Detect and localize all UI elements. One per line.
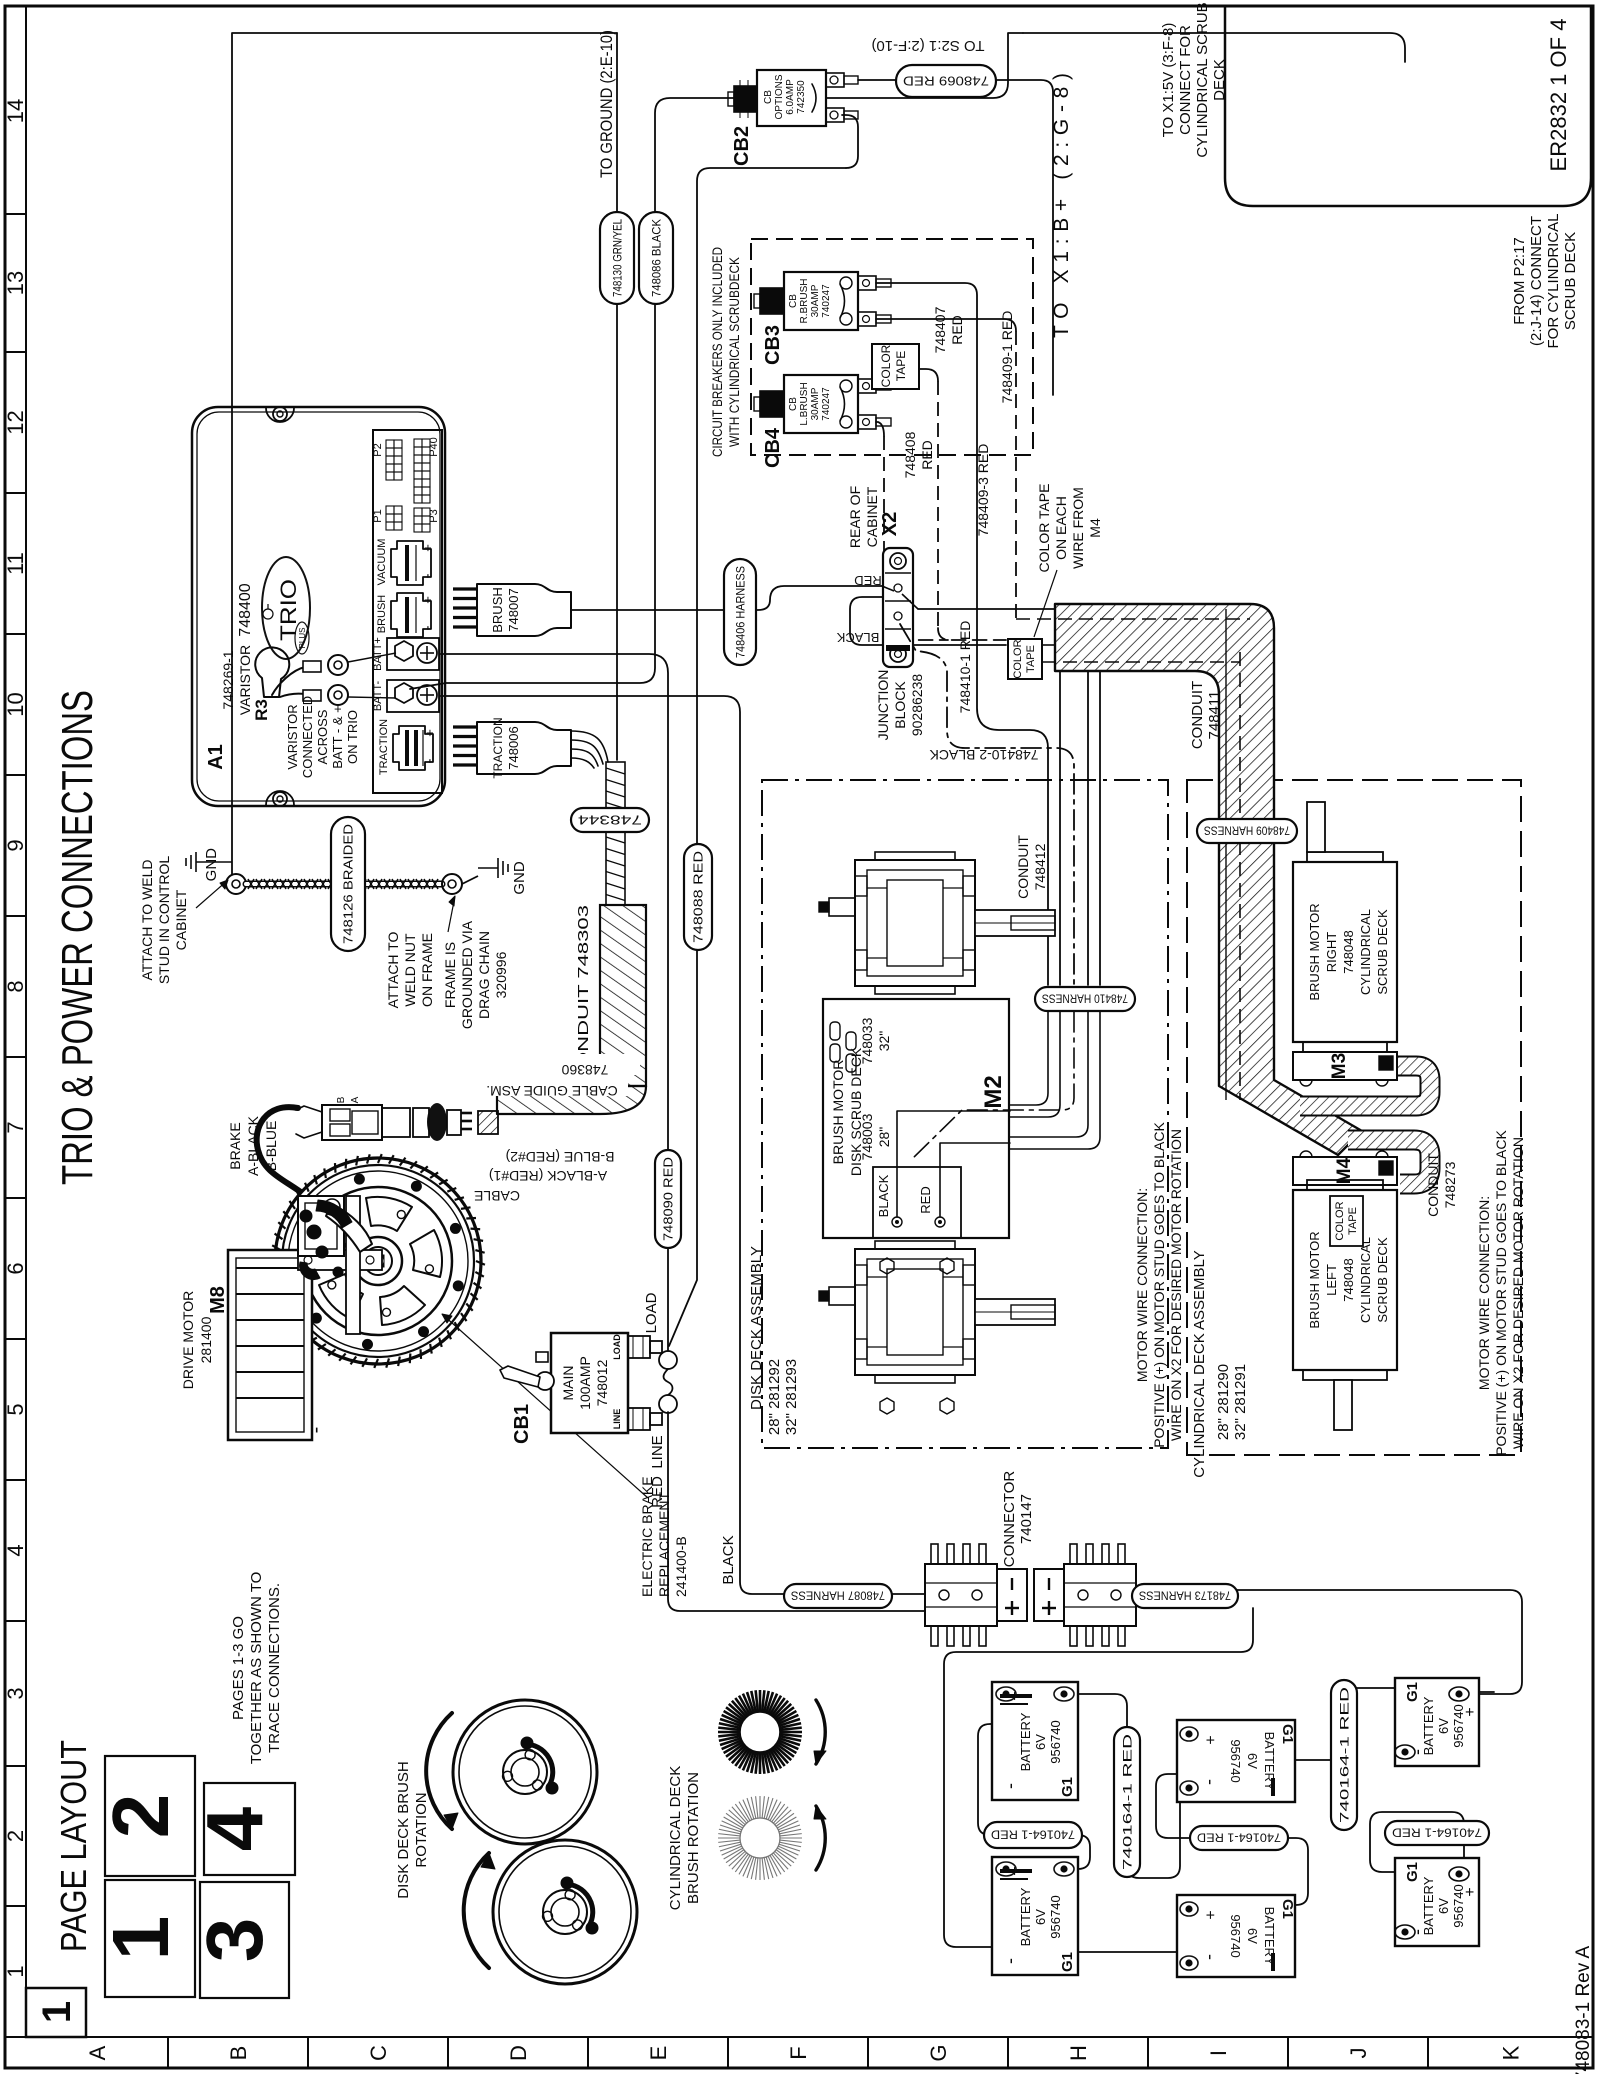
svg-text:X2: X2 — [879, 512, 901, 536]
svg-text:7: 7 — [3, 1121, 28, 1133]
svg-text:748269-1: 748269-1 — [220, 650, 236, 709]
svg-text:MOTOR WIRE CONNECTION:: MOTOR WIRE CONNECTION: — [1476, 1196, 1492, 1390]
svg-text:13: 13 — [3, 271, 28, 295]
svg-text:32" 281293: 32" 281293 — [783, 1359, 800, 1435]
svg-text:G1: G1 — [1279, 1724, 1296, 1744]
svg-text:748411: 748411 — [1206, 691, 1223, 740]
svg-text:ELECTRIC BRAKE: ELECTRIC BRAKE — [639, 1476, 655, 1597]
svg-text:-: - — [419, 626, 436, 631]
svg-text:COLOR: COLOR — [1012, 639, 1024, 678]
svg-text:CABLE: CABLE — [474, 1188, 520, 1204]
svg-text:A-BLACK: A-BLACK — [245, 1115, 261, 1176]
svg-text:BATT+: BATT+ — [372, 637, 384, 671]
svg-text:CIRCUIT BREAKERS ONLY INCLUDED: CIRCUIT BREAKERS ONLY INCLUDED — [709, 247, 725, 457]
svg-text:ON EACH: ON EACH — [1053, 496, 1069, 560]
svg-text:G1: G1 — [1404, 1862, 1421, 1882]
svg-text:GND: GND — [511, 861, 528, 895]
svg-text:CYLINDRICAL SCRUB: CYLINDRICAL SCRUB — [1194, 2, 1211, 157]
svg-text:241400-B: 241400-B — [673, 1536, 689, 1597]
svg-text:6V: 6V — [1245, 1753, 1260, 1769]
svg-text:4: 4 — [3, 1544, 28, 1556]
svg-text:748088 RED: 748088 RED — [691, 851, 706, 943]
svg-text:BLOCK: BLOCK — [892, 681, 908, 729]
svg-text:748090 RED: 748090 RED — [661, 1157, 676, 1241]
svg-text:BATTERY: BATTERY — [1421, 1696, 1436, 1755]
svg-text:956740: 956740 — [1048, 1895, 1063, 1938]
svg-text:3: 3 — [3, 1687, 28, 1699]
svg-text:748360: 748360 — [561, 1062, 608, 1078]
svg-text:748087 HARNESS: 748087 HARNESS — [791, 1589, 885, 1603]
svg-text:748006: 748006 — [506, 726, 521, 769]
svg-text:6: 6 — [3, 1262, 28, 1274]
svg-text:8: 8 — [3, 980, 28, 992]
svg-text:ATTACH TO WELD: ATTACH TO WELD — [139, 859, 155, 980]
svg-text:LEFT: LEFT — [1324, 1264, 1339, 1296]
svg-text:-: - — [1000, 1783, 1020, 1789]
svg-text:748410 HARNESS: 748410 HARNESS — [1042, 992, 1128, 1006]
svg-text:740164-1 RED: 740164-1 RED — [1392, 1826, 1482, 1840]
svg-text:P1: P1 — [372, 509, 384, 522]
svg-text:748048: 748048 — [1341, 1258, 1356, 1301]
svg-text:BATT - & +: BATT - & + — [330, 705, 345, 768]
svg-text:DECK: DECK — [1211, 59, 1228, 101]
svg-text:30AMP: 30AMP — [810, 387, 821, 420]
svg-text:E: E — [646, 2046, 671, 2061]
svg-text:ACROSS: ACROSS — [315, 709, 330, 764]
svg-text:H: H — [1066, 2045, 1091, 2061]
svg-text:740164-1 RED: 740164-1 RED — [1120, 1733, 1134, 1870]
svg-text:CB: CB — [763, 90, 774, 104]
svg-text:TO GROUND (2:E-10): TO GROUND (2:E-10) — [597, 30, 616, 178]
svg-text:GND: GND — [203, 848, 220, 882]
svg-text:742350: 742350 — [796, 80, 807, 114]
svg-text:748012: 748012 — [594, 1359, 610, 1406]
svg-text:740247: 740247 — [821, 284, 832, 318]
svg-text:JUNCTION: JUNCTION — [875, 670, 891, 741]
svg-text:POSITIVE (+) ON MOTOR STUD GOE: POSITIVE (+) ON MOTOR STUD GOES TO BLACK — [1151, 1122, 1167, 1448]
svg-text:PLUS: PLUS — [298, 628, 307, 649]
svg-text:BATTERY: BATTERY — [1018, 1887, 1033, 1946]
svg-text:REAR OF: REAR OF — [847, 486, 863, 548]
svg-text:WIRE ON X2 FOR DESIRED MOTOR R: WIRE ON X2 FOR DESIRED MOTOR ROTATION — [1168, 1129, 1184, 1441]
svg-text:P40: P40 — [428, 437, 440, 457]
svg-text:TRACE CONNECTIONS.: TRACE CONNECTIONS. — [266, 1583, 283, 1753]
svg-text:1: 1 — [96, 1916, 185, 1961]
svg-text:CABINET: CABINET — [173, 889, 189, 950]
svg-text:TAPE: TAPE — [894, 351, 908, 381]
svg-text:I: I — [1206, 2050, 1231, 2056]
svg-text:C: C — [366, 2045, 391, 2061]
svg-text:748083-1 Rev A: 748083-1 Rev A — [1573, 1946, 1594, 2074]
svg-text:-: - — [1201, 1954, 1221, 1960]
svg-text:G: G — [926, 2044, 951, 2061]
svg-text:DISK DECK ASSEMBLY: DISK DECK ASSEMBLY — [748, 1246, 765, 1410]
svg-text:748409-1 RED: 748409-1 RED — [999, 311, 1015, 404]
svg-text:748273: 748273 — [1442, 1161, 1458, 1208]
svg-text:G1: G1 — [1059, 1777, 1076, 1797]
svg-text:D: D — [506, 2045, 531, 2061]
svg-text:A-BLACK (RED#1): A-BLACK (RED#1) — [489, 1168, 607, 1184]
svg-text:CB: CB — [788, 397, 799, 411]
svg-text:740164-1 RED: 740164-1 RED — [1337, 1686, 1351, 1823]
svg-text:CB4: CB4 — [762, 427, 784, 468]
svg-text:RED: RED — [919, 440, 935, 470]
svg-text:748412: 748412 — [1032, 843, 1048, 890]
svg-text:CONNECT FOR: CONNECT FOR — [1177, 25, 1194, 135]
svg-text:GROUNDED VIA: GROUNDED VIA — [459, 920, 475, 1029]
svg-text:956740: 956740 — [1048, 1720, 1063, 1763]
svg-text:DISK DECK BRUSH: DISK DECK BRUSH — [395, 1761, 412, 1899]
svg-text:BLACK: BLACK — [836, 630, 879, 645]
svg-text:CB3: CB3 — [762, 325, 784, 365]
svg-text:-: - — [419, 574, 436, 579]
svg-text:748406 HARNESS: 748406 HARNESS — [733, 566, 747, 658]
svg-text:748407: 748407 — [932, 306, 948, 353]
svg-text:M4: M4 — [1087, 518, 1103, 538]
svg-text:B: B — [336, 1096, 347, 1103]
svg-text:748410-2 BLACK: 748410-2 BLACK — [929, 747, 1039, 763]
svg-text:WIRE FROM: WIRE FROM — [1070, 487, 1086, 569]
svg-text:748400: 748400 — [237, 583, 254, 636]
svg-text:MAIN: MAIN — [560, 1366, 576, 1401]
svg-text:6V: 6V — [1033, 1909, 1048, 1925]
svg-text:748069 RED: 748069 RED — [903, 73, 989, 88]
svg-text:P3: P3 — [428, 509, 440, 522]
svg-text:2: 2 — [3, 1830, 28, 1842]
svg-text:9: 9 — [3, 839, 28, 851]
svg-text:6V: 6V — [1033, 1734, 1048, 1750]
svg-text:6.0AMP: 6.0AMP — [785, 79, 796, 115]
svg-text:CABINET: CABINET — [864, 486, 880, 547]
svg-text:748409-3 RED: 748409-3 RED — [975, 444, 991, 537]
svg-text:PAGE LAYOUT: PAGE LAYOUT — [53, 1740, 94, 1952]
svg-text:4: 4 — [190, 1806, 279, 1851]
svg-text:956740: 956740 — [1228, 1914, 1243, 1957]
svg-text:BRUSH: BRUSH — [490, 587, 505, 633]
svg-text:TOGETHER AS SHOWN TO: TOGETHER AS SHOWN TO — [248, 1572, 265, 1765]
svg-text:-: - — [1000, 1958, 1020, 1964]
svg-text:A: A — [350, 1096, 361, 1103]
svg-text:14: 14 — [3, 99, 28, 123]
svg-text:DRIVE MOTOR: DRIVE MOTOR — [180, 1291, 196, 1390]
svg-text:A: A — [85, 2045, 110, 2060]
svg-text:CB1: CB1 — [511, 1404, 533, 1444]
svg-text:CB2: CB2 — [731, 126, 753, 166]
svg-text:PAGES 1-3 GO: PAGES 1-3 GO — [230, 1616, 247, 1720]
svg-text:BLACK: BLACK — [720, 1535, 737, 1584]
svg-text:748410-1 RED: 748410-1 RED — [957, 621, 973, 714]
svg-text:28": 28" — [876, 1127, 892, 1148]
svg-text:90286238: 90286238 — [909, 674, 925, 737]
svg-text:BRAKE: BRAKE — [227, 1122, 243, 1169]
svg-text:WELD NUT: WELD NUT — [402, 933, 418, 1007]
svg-text:BLACK: BLACK — [876, 1174, 891, 1217]
svg-text:740247: 740247 — [821, 387, 832, 421]
svg-text:CONDUIT: CONDUIT — [1425, 1153, 1441, 1217]
svg-text:6V: 6V — [1245, 1928, 1260, 1944]
svg-text:G1: G1 — [1279, 1899, 1296, 1919]
svg-text:TAPE: TAPE — [1025, 645, 1037, 673]
svg-text:CONDUIT: CONDUIT — [1189, 681, 1206, 749]
svg-text:R3: R3 — [252, 699, 271, 721]
svg-text:-: - — [1407, 1749, 1427, 1755]
svg-text:RED: RED — [854, 573, 881, 588]
svg-text:CB: CB — [788, 294, 799, 308]
svg-text:WITH CYLINDRICAL SCRUBDECK: WITH CYLINDRICAL SCRUBDECK — [726, 256, 742, 447]
svg-text:748003: 748003 — [859, 1113, 875, 1160]
svg-text:6V: 6V — [1436, 1718, 1451, 1734]
svg-text:BATTERY: BATTERY — [1421, 1876, 1436, 1935]
svg-text:748130 GRN/YEL: 748130 GRN/YEL — [610, 219, 624, 297]
svg-text:+: + — [1201, 1910, 1218, 1919]
svg-text:748033: 748033 — [859, 1017, 875, 1064]
svg-text:+: + — [1201, 1735, 1218, 1744]
svg-text:L.BRUSH: L.BRUSH — [799, 382, 810, 425]
svg-text:VACUUM: VACUUM — [376, 539, 388, 586]
svg-text:BRUSH MOTOR: BRUSH MOTOR — [1307, 903, 1322, 1000]
svg-text:G1: G1 — [1059, 1952, 1076, 1972]
svg-text:RED: RED — [918, 1186, 933, 1213]
svg-text:B-BLUE (RED#2): B-BLUE (RED#2) — [506, 1149, 615, 1165]
svg-text:WIRE ON X2 FOR DESIRED MOTOR R: WIRE ON X2 FOR DESIRED MOTOR ROTATION — [1510, 1137, 1526, 1449]
svg-text:+: + — [1462, 1887, 1479, 1896]
svg-text:CYLINDRICAL DECK: CYLINDRICAL DECK — [667, 1766, 684, 1910]
svg-text:748173 HARNESS: 748173 HARNESS — [1139, 1589, 1231, 1603]
svg-text:6V: 6V — [1436, 1898, 1451, 1914]
svg-text:OPTIONS: OPTIONS — [774, 74, 785, 119]
svg-text:BRUSH MOTOR: BRUSH MOTOR — [1307, 1231, 1322, 1328]
svg-text:(2:J-14) CONNECT: (2:J-14) CONNECT — [1528, 216, 1545, 346]
svg-text:CONDUIT: CONDUIT — [1015, 835, 1031, 899]
svg-text:CONNECTED: CONNECTED — [300, 696, 315, 778]
svg-text:MOTOR WIRE CONNECTION:: MOTOR WIRE CONNECTION: — [1134, 1188, 1150, 1382]
svg-text:CYLINDRICAL: CYLINDRICAL — [1358, 1237, 1373, 1323]
svg-text:BATTERY: BATTERY — [1018, 1712, 1033, 1771]
svg-text:B-BLUE: B-BLUE — [263, 1121, 279, 1172]
svg-text:LOAD: LOAD — [643, 1292, 660, 1333]
svg-text:A1: A1 — [205, 744, 227, 770]
svg-text:SCRUB DECK: SCRUB DECK — [1375, 909, 1390, 995]
svg-text:TRACTION: TRACTION — [491, 717, 505, 778]
svg-text:B: B — [226, 2046, 251, 2061]
svg-text:320996: 320996 — [493, 951, 509, 998]
svg-text:J: J — [1346, 2048, 1371, 2059]
svg-text:12: 12 — [3, 410, 28, 434]
svg-text:K: K — [1499, 2045, 1524, 2060]
svg-text:CYLINDRICAL: CYLINDRICAL — [1358, 909, 1373, 995]
svg-text:TO S2:1 (2:F-10): TO S2:1 (2:F-10) — [871, 37, 984, 54]
svg-text:956740: 956740 — [1228, 1739, 1243, 1782]
svg-text:740164-1 RED: 740164-1 RED — [1197, 1831, 1281, 1845]
svg-text:FOR CYLINDRICAL: FOR CYLINDRICAL — [1545, 213, 1562, 348]
svg-text:748048: 748048 — [1341, 930, 1356, 973]
svg-text:COLOR: COLOR — [879, 344, 893, 387]
svg-text:CONNECTOR: CONNECTOR — [1001, 1471, 1018, 1568]
svg-text:COLOR: COLOR — [1334, 1201, 1346, 1240]
svg-text:ATTACH TO: ATTACH TO — [385, 932, 401, 1009]
svg-text:TAPE: TAPE — [1347, 1207, 1359, 1235]
svg-text:TRIO & POWER CONNECTIONS: TRIO & POWER CONNECTIONS — [53, 690, 102, 1185]
svg-text:RED: RED — [949, 315, 965, 345]
svg-text:ER2832 1 OF 4: ER2832 1 OF 4 — [1546, 19, 1571, 172]
svg-text:2: 2 — [96, 1794, 185, 1839]
svg-text:F: F — [786, 2046, 811, 2059]
svg-text:32": 32" — [876, 1031, 892, 1052]
svg-text:1: 1 — [3, 1965, 28, 1977]
svg-text:100AMP: 100AMP — [577, 1356, 593, 1410]
svg-text:28" 281290: 28" 281290 — [1215, 1364, 1232, 1440]
svg-text:STUD IN CONTROL: STUD IN CONTROL — [156, 856, 172, 985]
svg-text:BATT-: BATT- — [372, 680, 384, 711]
svg-text:28" 281292: 28" 281292 — [766, 1359, 783, 1435]
svg-text:+: + — [1007, 1866, 1024, 1875]
svg-text:P2: P2 — [372, 443, 384, 456]
svg-text:G1: G1 — [1404, 1682, 1421, 1702]
svg-text:+: + — [422, 729, 437, 737]
svg-text:-: - — [421, 759, 438, 764]
svg-text:748344: 748344 — [578, 812, 642, 827]
svg-text:LINE: LINE — [649, 1435, 666, 1468]
svg-text:3: 3 — [190, 1918, 279, 1963]
svg-text:740147: 740147 — [1018, 1494, 1035, 1544]
svg-text:BRUSH: BRUSH — [376, 595, 388, 634]
svg-text:740164-1 RED: 740164-1 RED — [991, 1828, 1075, 1842]
svg-text:COLOR TAPE: COLOR TAPE — [1036, 484, 1052, 573]
svg-text:VARISTOR: VARISTOR — [285, 704, 300, 769]
svg-text:30AMP: 30AMP — [810, 284, 821, 317]
svg-text:5: 5 — [3, 1403, 28, 1415]
svg-text:M8: M8 — [207, 1286, 229, 1314]
svg-text:+: + — [1007, 1691, 1024, 1700]
svg-text:LINE: LINE — [612, 1409, 622, 1430]
svg-text:748126 BRAIDED: 748126 BRAIDED — [341, 824, 356, 944]
svg-text:TO X1:5V (3:F-8): TO X1:5V (3:F-8) — [1160, 23, 1177, 138]
svg-text:-: - — [1407, 1929, 1427, 1935]
svg-text:M2: M2 — [980, 1075, 1007, 1108]
svg-text:748007: 748007 — [506, 588, 521, 631]
svg-text:+: + — [420, 596, 435, 604]
svg-text:DRAG CHAIN: DRAG CHAIN — [476, 931, 492, 1019]
svg-text:ON FRAME: ON FRAME — [419, 933, 435, 1007]
svg-text:M3: M3 — [1329, 1053, 1350, 1079]
svg-text:11: 11 — [3, 552, 28, 575]
svg-text:REPLACEMENT: REPLACEMENT — [656, 1492, 672, 1597]
svg-text:ON TRIO: ON TRIO — [345, 710, 360, 764]
svg-text:-: - — [305, 1427, 327, 1434]
svg-text:TRACTION: TRACTION — [378, 719, 390, 775]
svg-text:BRUSH MOTOR: BRUSH MOTOR — [830, 1060, 846, 1165]
svg-text:VARISTOR: VARISTOR — [237, 645, 253, 715]
svg-text:CYLINDRICAL DECK ASSEMBLY: CYLINDRICAL DECK ASSEMBLY — [1191, 1250, 1208, 1478]
svg-text:LOAD: LOAD — [612, 1334, 622, 1360]
svg-text:1: 1 — [35, 2001, 79, 2023]
svg-text:748408: 748408 — [902, 431, 918, 478]
svg-text:-: - — [1201, 1779, 1221, 1785]
svg-text:FROM P2:17: FROM P2:17 — [1511, 237, 1528, 325]
svg-text:FRAME IS: FRAME IS — [442, 942, 458, 1008]
svg-text:+: + — [1462, 1707, 1479, 1716]
svg-text:SCRUB DECK: SCRUB DECK — [1375, 1237, 1390, 1323]
svg-text:32" 281291: 32" 281291 — [1232, 1364, 1249, 1440]
svg-text:POSITIVE (+) ON MOTOR STUD GOE: POSITIVE (+) ON MOTOR STUD GOES TO BLACK — [1493, 1130, 1509, 1456]
svg-text:10: 10 — [3, 692, 28, 716]
svg-text:SCRUB DECK: SCRUB DECK — [1562, 232, 1579, 330]
svg-text:+: + — [420, 544, 435, 552]
svg-text:CABLE GUIDE ASM.: CABLE GUIDE ASM. — [486, 1083, 617, 1099]
svg-text:BRUSH ROTATION: BRUSH ROTATION — [685, 1772, 702, 1904]
svg-text:281400: 281400 — [198, 1316, 214, 1363]
svg-text:ROTATION: ROTATION — [413, 1792, 430, 1867]
svg-text:RIGHT: RIGHT — [1324, 932, 1339, 973]
svg-text:R.BRUSH: R.BRUSH — [799, 278, 810, 323]
svg-text:748086 BLACK: 748086 BLACK — [649, 219, 663, 297]
svg-text:748409 HARNESS: 748409 HARNESS — [1204, 824, 1290, 838]
